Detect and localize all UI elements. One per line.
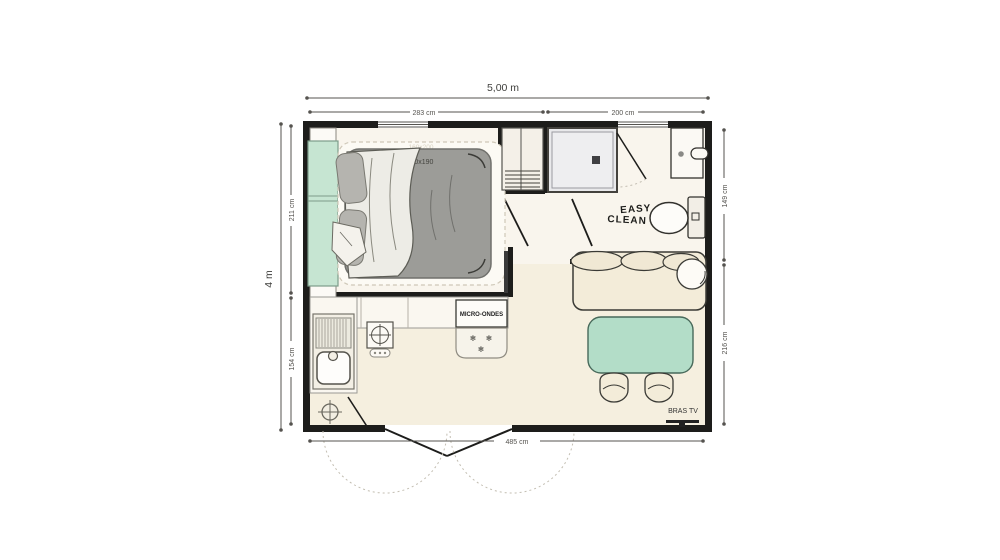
toilet-bowl [650,203,688,234]
headboard-bench [308,141,338,286]
snowflake-icon-2: ❄ [486,334,493,343]
basin-faucet-icon [691,148,708,159]
floor-plan: 160x200 140x190 EASY [0,0,1000,560]
dim-bottom-label: 485 cm [506,439,529,446]
dim-top-left-label: 283 cm [413,110,436,117]
shower-tray-inner [552,132,613,188]
dim-top-overall: 5,00 m [305,82,710,100]
shower-drain-icon [592,156,600,164]
entrance-door-leaves [385,429,512,456]
nightstand-top [310,128,336,141]
dim-left-top-label: 211 cm [289,199,296,222]
round-pillow [677,259,707,289]
stove [367,322,393,357]
wardrobe [502,128,543,190]
dining-table [588,317,693,373]
floor-plan-page: 160x200 140x190 EASY [0,0,1000,560]
basin-drain-dot [678,151,684,157]
snowflake-icon-1: ❄ [470,334,477,343]
tv-bracket-label: BRAS TV [668,408,698,415]
dim-right-bottom-label: 216 cm [722,331,729,354]
bedroom: 160x200 140x190 [308,128,508,299]
dim-bottom: 485 cm [308,439,705,446]
window-top-left [378,121,428,128]
chair-1 [600,373,628,402]
snowflake-icon-3: ❄ [478,345,485,354]
fridge: ❄ ❄ ❄ [456,328,507,358]
toilet-cistern [688,197,705,238]
microwave-label: MICRO-ONDES [460,312,503,318]
pillow-1 [335,151,368,204]
washbasin [671,128,708,178]
brand-line2: CLEAN [607,214,647,227]
dim-right-top-label: 149 cm [722,184,729,207]
sink-faucet-icon [329,352,338,361]
dim-top-sections: 283 cm 200 cm [308,110,705,117]
chair-2 [645,373,673,402]
dim-overall-height-label: 4 m [263,270,275,288]
dim-left-bottom-label: 154 cm [289,347,296,370]
dim-top-right-label: 200 cm [612,110,635,117]
entrance-door [323,425,574,493]
entrance-door-opening [385,425,512,432]
window-top-right [618,121,668,128]
dim-left-sections: 211 cm 154 cm [289,124,296,426]
bedroom-hall-wall [508,247,513,297]
dim-overall-width-label: 5,00 m [487,82,519,94]
entrance-door-swing-arcs [323,431,574,493]
dim-right-sections: 149 cm 216 cm [722,128,729,426]
microwave-box: MICRO-ONDES [456,300,507,327]
seat-cushion-1 [571,252,623,271]
seat-cushion-2 [621,252,667,271]
dim-left-overall: 4 m [263,122,283,432]
wall-tv-icon [504,251,508,293]
